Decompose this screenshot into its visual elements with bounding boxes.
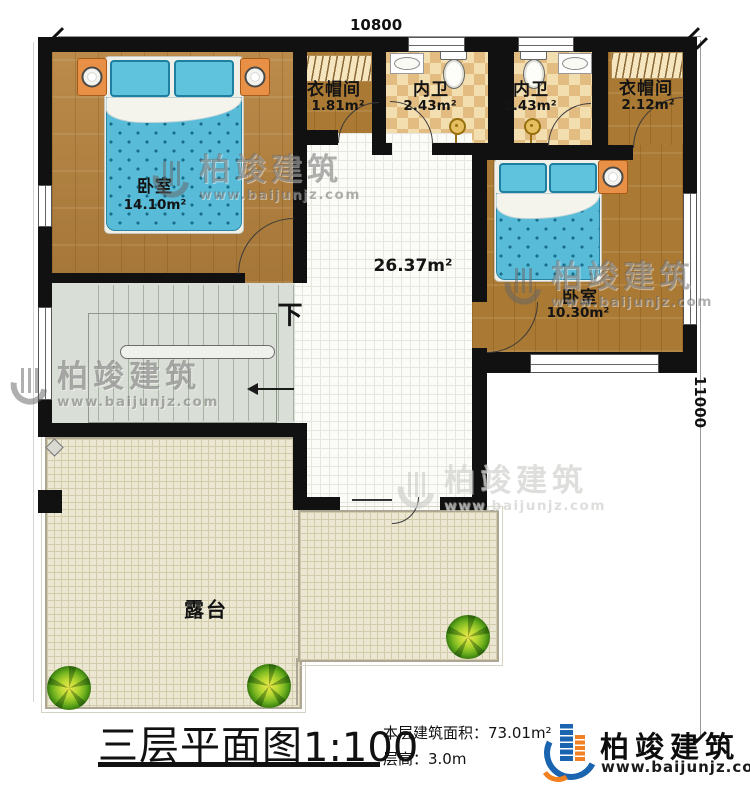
bed-right-duvet	[496, 193, 600, 280]
wall-hall-south-stub-left	[293, 497, 340, 510]
wall-terrace-top	[38, 423, 307, 437]
floor-area-text: 本层建筑面积：73.01m²	[383, 722, 552, 743]
terrace-step-edge	[296, 658, 298, 705]
hall-floor	[293, 133, 472, 510]
wall-hall-bed2-upper	[472, 160, 487, 302]
floor-height-text: 层高：3.0m	[383, 748, 466, 769]
window-right-bedroom	[683, 193, 697, 325]
stair-handrail	[120, 345, 275, 359]
bed-left-pillow-2	[174, 60, 234, 97]
terrace-plant-1	[47, 666, 91, 710]
wall-hall-left-upper	[293, 37, 307, 283]
door-terrace-leaf	[352, 499, 392, 501]
plan-title-underline	[98, 762, 380, 767]
brand-logo-tower-orange	[575, 734, 585, 761]
window-left-bedroom	[38, 185, 52, 227]
window-left-stairs	[38, 307, 52, 400]
wall-cloak1-bottom	[293, 130, 338, 145]
extension-line-left	[33, 42, 34, 702]
wall-hall-south-stub-right	[440, 497, 487, 510]
wall-hall-bed2-lower	[472, 348, 487, 510]
nightstand-left-b	[240, 58, 270, 96]
cloakroom-right-rack	[611, 52, 683, 79]
terrace-pillar	[38, 490, 62, 513]
bed-left-sheet-fold	[106, 97, 242, 123]
wall-bath2-cloak2	[592, 37, 608, 155]
brand-logo-tower-blue	[560, 724, 573, 761]
dimension-width-label: 10800	[350, 16, 402, 34]
nightstand-left-a	[77, 58, 107, 96]
wall-cloak2-bottom	[608, 145, 633, 160]
terrace-label: 露台	[184, 599, 228, 622]
bedroom-left-label: 卧室	[137, 178, 173, 198]
wall-bath1-bath2	[488, 37, 514, 155]
window-top-bath-right	[518, 37, 574, 52]
sink-right	[558, 53, 592, 74]
cloakroom-left-rack	[300, 55, 372, 82]
bed-left-pillow	[110, 60, 170, 97]
window-bedroom-right-south	[530, 354, 659, 373]
wall-bedroom-right-top	[472, 145, 608, 160]
stairs-down-label: 下	[277, 302, 302, 331]
cloakroom-left-area: 1.81m²	[311, 99, 364, 115]
bathroom-right-area: 2.43m²	[503, 99, 556, 115]
wall-bedroom-left-bottom	[38, 273, 245, 283]
sink-left	[390, 53, 424, 74]
stairwell-outline	[88, 313, 277, 423]
hall-area: 26.37m²	[374, 257, 453, 277]
terrace-plant-2	[247, 664, 291, 708]
brand-logo-icon	[543, 719, 595, 779]
floor-plan: 卧室 14.10m² 衣帽间 1.81m² 内卫 2.43m² 内卫 2.43m…	[0, 0, 750, 792]
window-top-bath-left	[408, 37, 465, 52]
bedroom-right-area: 10.30m²	[547, 306, 610, 322]
bedroom-left-area: 14.10m²	[124, 198, 187, 214]
dim-tick-right-top	[695, 37, 707, 49]
wall-bath1-bottom-a	[386, 143, 392, 155]
bathroom-left-area: 2.43m²	[403, 99, 456, 115]
shower-head-right	[524, 118, 541, 135]
terrace-plant-3	[446, 615, 490, 659]
stair-direction-arrow	[252, 388, 294, 390]
bed-right-pillow-2	[549, 163, 597, 193]
bed-right-sheet-fold	[496, 193, 600, 219]
cloakroom-right-area: 2.12m²	[621, 98, 674, 114]
brand-website: www.baijunjz.com	[601, 758, 750, 776]
shower-head-left	[449, 118, 466, 135]
dimension-height-label: 11000	[691, 376, 709, 428]
nightstand-right	[598, 160, 628, 194]
bed-right-pillow	[499, 163, 547, 193]
